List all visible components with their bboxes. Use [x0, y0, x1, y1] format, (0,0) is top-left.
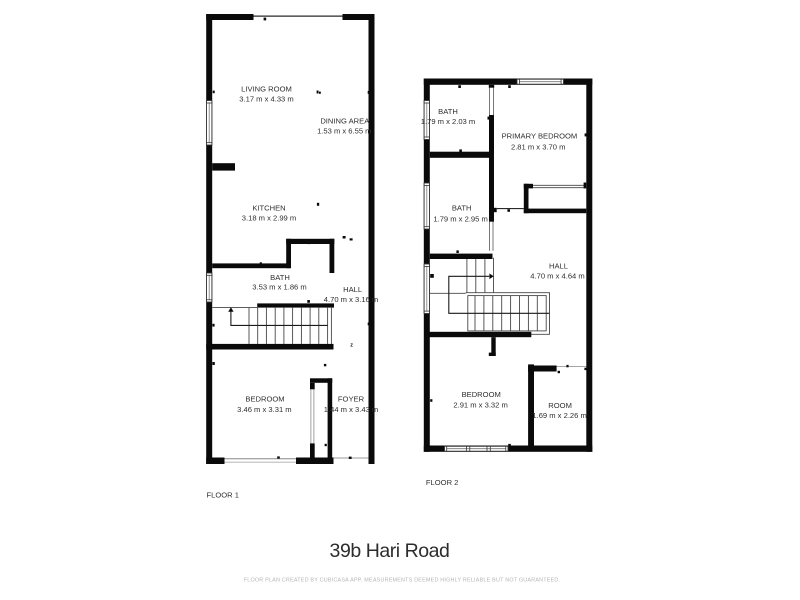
svg-text:LIVING ROOM: LIVING ROOM	[241, 84, 292, 93]
svg-text:FLOOR PLAN CREATED BY CUBICASA: FLOOR PLAN CREATED BY CUBICASA APP. MEAS…	[244, 578, 560, 584]
svg-text:HALL: HALL	[549, 262, 568, 271]
svg-text:DINING AREA: DINING AREA	[320, 116, 370, 125]
svg-text:2.81 m x 3.70 m: 2.81 m x 3.70 m	[511, 143, 565, 152]
svg-text:ROOM: ROOM	[548, 401, 572, 410]
svg-text:BATH: BATH	[270, 273, 290, 282]
svg-text:FLOOR 2: FLOOR 2	[426, 478, 459, 487]
svg-text:1.53 m x 6.55 m: 1.53 m x 6.55 m	[317, 127, 371, 136]
svg-text:FLOOR 1: FLOOR 1	[207, 491, 240, 500]
svg-text:1.44 m x 3.43 m: 1.44 m x 3.43 m	[324, 405, 378, 414]
svg-text:2.91 m x 3.32 m: 2.91 m x 3.32 m	[453, 401, 507, 410]
svg-text:BATH: BATH	[452, 204, 472, 213]
svg-text:BATH: BATH	[438, 107, 458, 116]
svg-text:3.53 m x 1.86 m: 3.53 m x 1.86 m	[252, 283, 306, 292]
svg-text:3.46 m x 3.31 m: 3.46 m x 3.31 m	[237, 405, 291, 414]
svg-text:PRIMARY BEDROOM: PRIMARY BEDROOM	[502, 132, 578, 141]
svg-text:1.79 m x 2.95 m: 1.79 m x 2.95 m	[433, 215, 487, 224]
svg-text:HALL: HALL	[343, 285, 362, 294]
svg-text:39b Hari Road: 39b Hari Road	[330, 540, 450, 562]
svg-text:KITCHEN: KITCHEN	[252, 203, 285, 212]
svg-text:1.79 m x 2.03 m: 1.79 m x 2.03 m	[421, 117, 475, 126]
svg-text:3.17 m x 4.33 m: 3.17 m x 4.33 m	[239, 95, 293, 104]
svg-text:z: z	[350, 343, 353, 349]
svg-text:BEDROOM: BEDROOM	[245, 395, 284, 404]
svg-text:FOYER: FOYER	[338, 395, 365, 404]
svg-text:1.69 m x 2.26 m: 1.69 m x 2.26 m	[532, 411, 586, 420]
svg-text:4.70 m x 4.64 m: 4.70 m x 4.64 m	[530, 272, 584, 281]
svg-text:3.18 m x 2.99 m: 3.18 m x 2.99 m	[242, 213, 296, 222]
svg-text:4.70 m x 3.16 m: 4.70 m x 3.16 m	[324, 295, 378, 304]
svg-text:BEDROOM: BEDROOM	[462, 390, 501, 399]
